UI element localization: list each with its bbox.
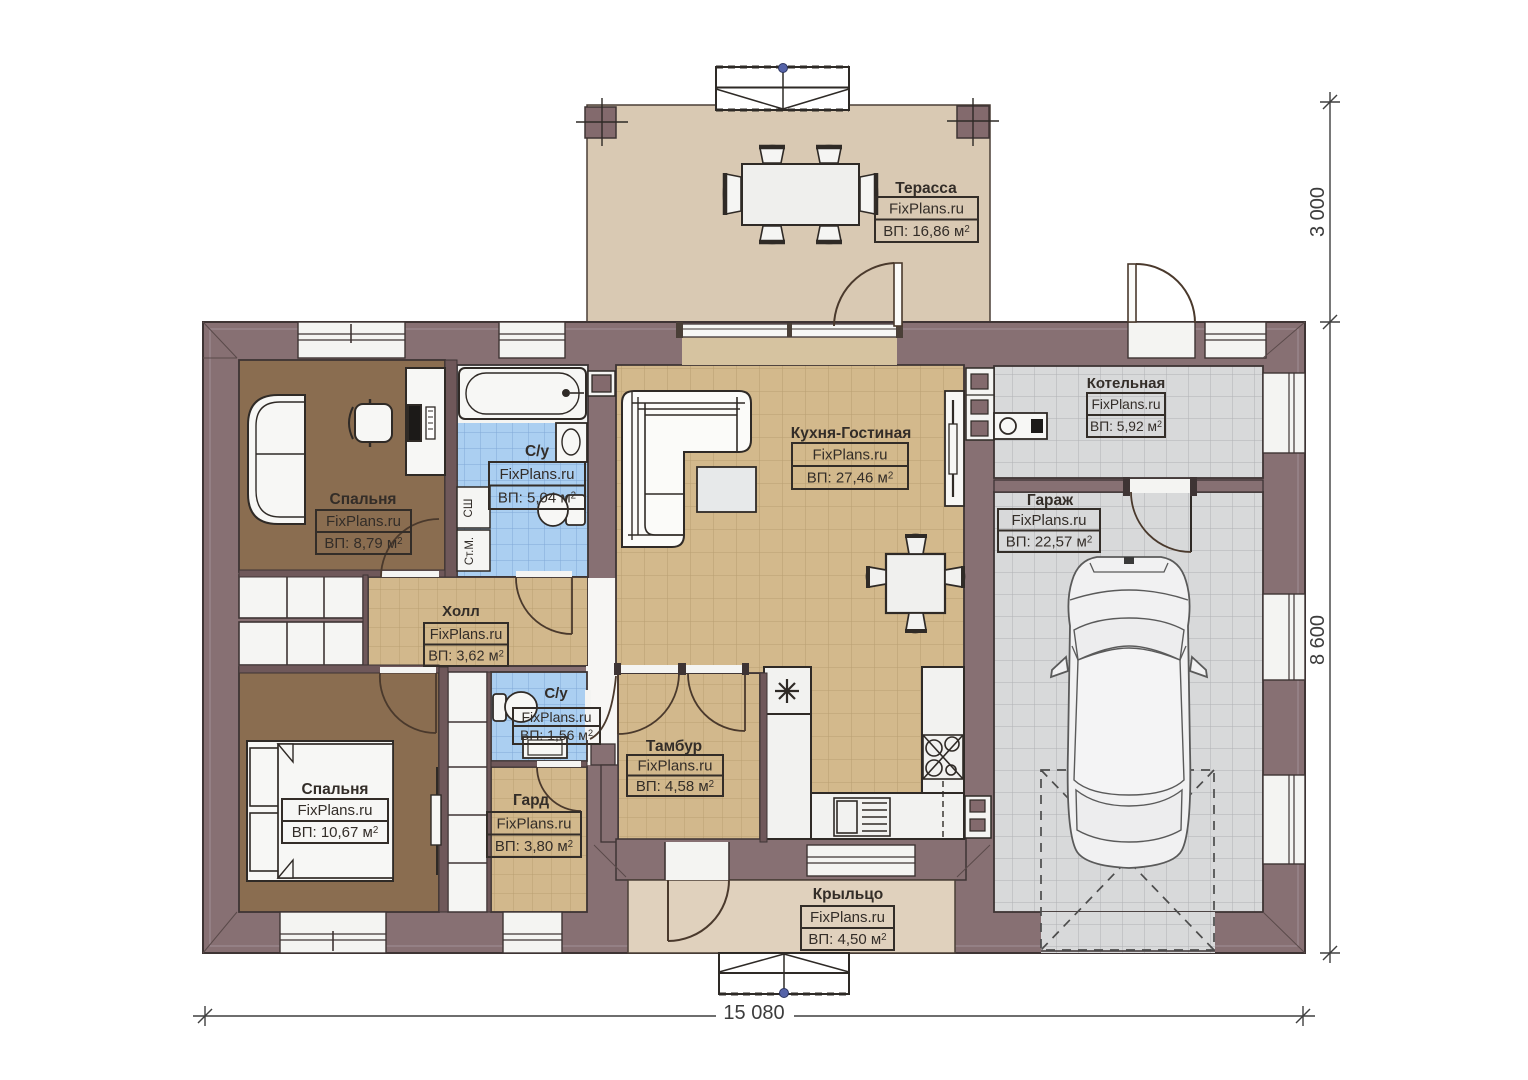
svg-text:Холл: Холл	[442, 603, 480, 620]
svg-text:Спальня: Спальня	[302, 781, 369, 798]
svg-text:Ст.М.: Ст.М.	[464, 537, 476, 565]
svg-text:15 080: 15 080	[723, 1002, 784, 1024]
svg-text:ВП: 1,56 м2: ВП: 1,56 м2	[520, 727, 593, 743]
svg-text:FixPlans.ru: FixPlans.ru	[496, 815, 571, 832]
svg-text:FixPlans.ru: FixPlans.ru	[812, 447, 887, 464]
svg-text:Терасса: Терасса	[895, 180, 957, 197]
svg-text:ВП: 22,57 м2: ВП: 22,57 м2	[1006, 533, 1093, 550]
svg-text:ВП: 4,58 м2: ВП: 4,58 м2	[636, 778, 714, 795]
svg-text:8 600: 8 600	[1307, 615, 1329, 665]
svg-text:FixPlans.ru: FixPlans.ru	[521, 709, 591, 725]
svg-text:Гард: Гард	[513, 792, 549, 809]
svg-text:3 000: 3 000	[1307, 187, 1329, 237]
svg-text:FixPlans.ru: FixPlans.ru	[326, 513, 401, 530]
svg-text:ВП: 8,79 м2: ВП: 8,79 м2	[324, 535, 402, 552]
svg-text:Котельная: Котельная	[1087, 375, 1166, 392]
svg-text:FixPlans.ru: FixPlans.ru	[810, 909, 885, 926]
svg-text:Спальня: Спальня	[330, 491, 397, 508]
svg-text:ВП: 3,62 м2: ВП: 3,62 м2	[428, 647, 504, 664]
svg-text:Тамбур: Тамбур	[646, 738, 702, 755]
svg-text:ВП: 27,46 м2: ВП: 27,46 м2	[807, 470, 894, 487]
svg-text:FixPlans.ru: FixPlans.ru	[430, 627, 503, 643]
svg-text:FixPlans.ru: FixPlans.ru	[499, 466, 574, 483]
svg-text:FixPlans.ru: FixPlans.ru	[1091, 397, 1160, 412]
svg-text:Крыльцо: Крыльцо	[813, 886, 884, 903]
svg-text:FixPlans.ru: FixPlans.ru	[297, 802, 372, 819]
svg-text:ВП: 3,80 м2: ВП: 3,80 м2	[495, 838, 573, 855]
svg-text:ВП: 4,50 м2: ВП: 4,50 м2	[808, 931, 886, 948]
svg-text:FixPlans.ru: FixPlans.ru	[889, 200, 964, 217]
svg-text:ВП: 5,04 м2: ВП: 5,04 м2	[498, 489, 576, 506]
svg-text:ВП: 10,67 м2: ВП: 10,67 м2	[292, 824, 379, 841]
svg-text:ВП: 16,86 м2: ВП: 16,86 м2	[883, 223, 970, 240]
svg-text:ВП: 5,92 м2: ВП: 5,92 м2	[1090, 419, 1162, 434]
svg-text:Кухня-Гостиная: Кухня-Гостиная	[791, 425, 912, 442]
svg-text:FixPlans.ru: FixPlans.ru	[637, 757, 712, 774]
svg-text:Гараж: Гараж	[1027, 492, 1074, 509]
svg-text:СШ: СШ	[463, 499, 475, 518]
svg-text:С/у: С/у	[525, 443, 550, 460]
svg-text:С/у: С/у	[544, 685, 568, 702]
svg-text:FixPlans.ru: FixPlans.ru	[1011, 512, 1086, 529]
